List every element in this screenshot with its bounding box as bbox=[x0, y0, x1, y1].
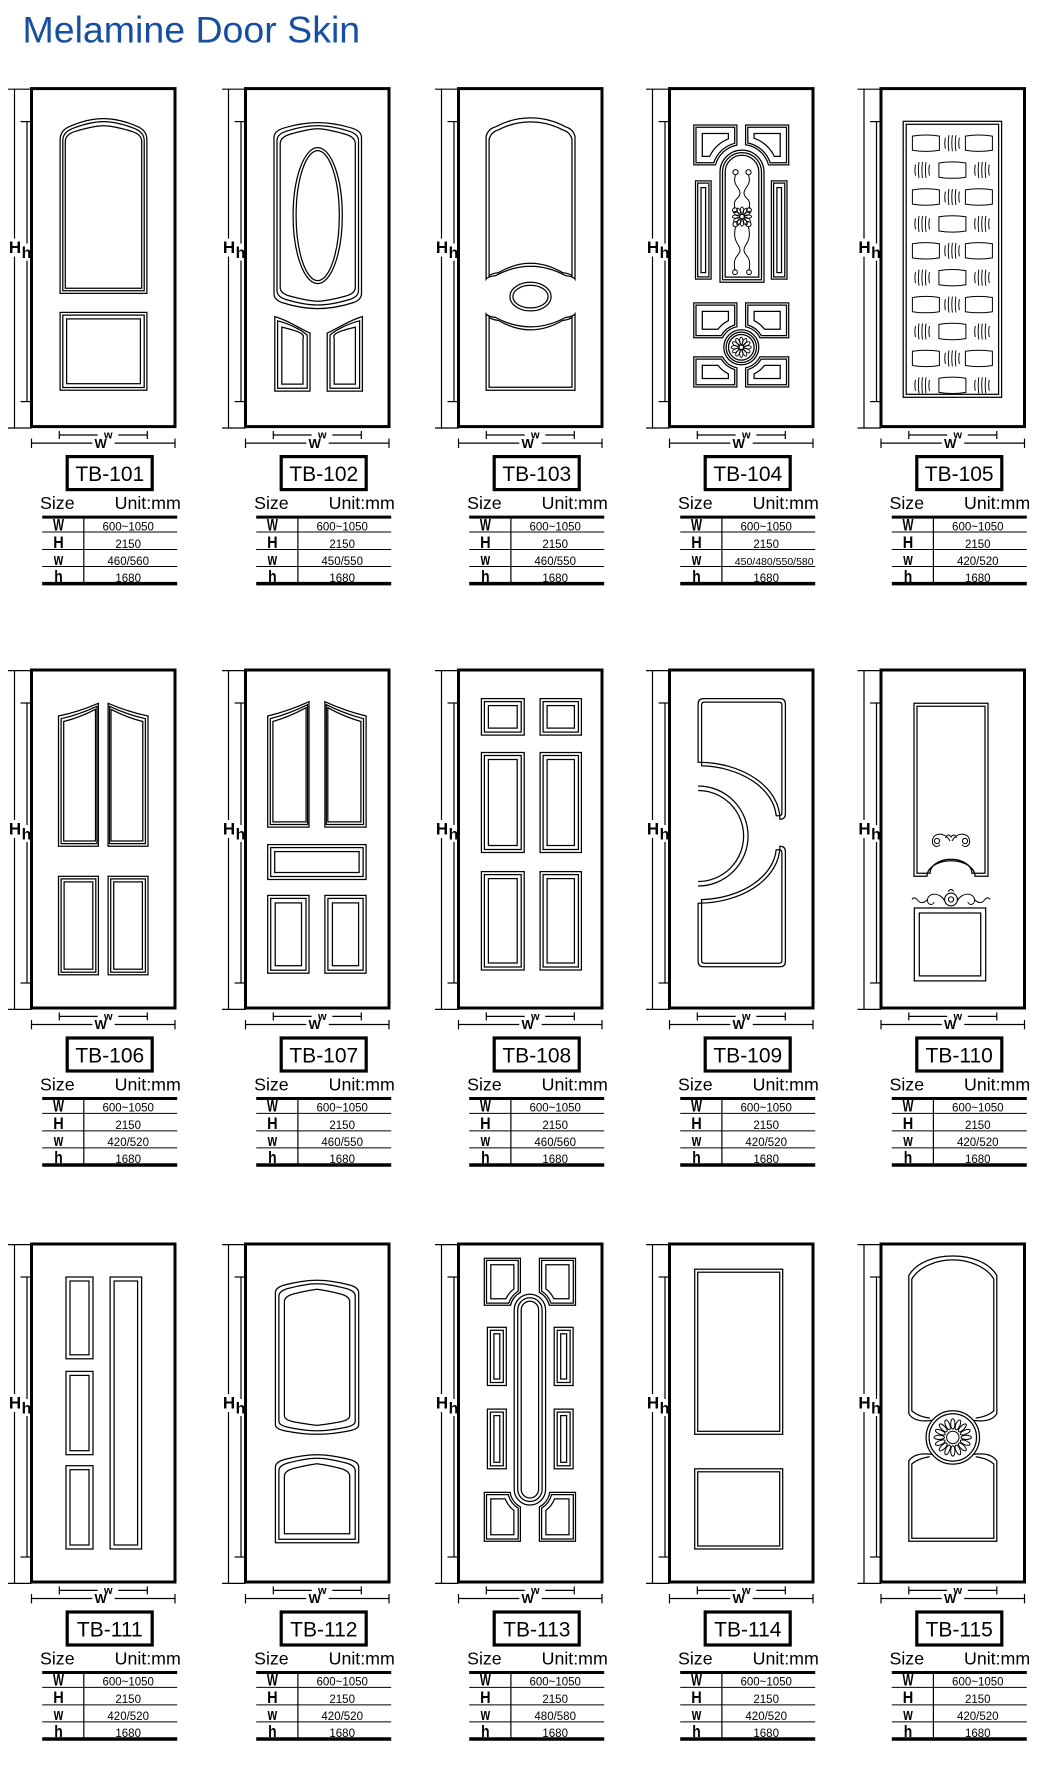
svg-text:1680: 1680 bbox=[115, 1728, 141, 1740]
svg-text:Size: Size bbox=[890, 1649, 925, 1669]
svg-text:TB-108: TB-108 bbox=[502, 1045, 571, 1068]
svg-text:H: H bbox=[267, 534, 278, 552]
svg-text:TB-109: TB-109 bbox=[713, 1045, 782, 1068]
svg-text:h: h bbox=[692, 1149, 701, 1167]
svg-text:W: W bbox=[903, 1098, 914, 1116]
svg-text:H: H bbox=[691, 534, 702, 552]
svg-text:w: w bbox=[53, 1132, 63, 1150]
svg-text:TB-112: TB-112 bbox=[290, 1619, 357, 1642]
svg-text:2150: 2150 bbox=[753, 539, 779, 551]
svg-text:W: W bbox=[733, 1017, 746, 1032]
svg-text:H: H bbox=[9, 238, 21, 257]
svg-text:TB-110: TB-110 bbox=[926, 1045, 993, 1068]
svg-text:2150: 2150 bbox=[542, 1694, 568, 1706]
svg-text:Size: Size bbox=[254, 493, 289, 513]
svg-text:W: W bbox=[53, 516, 64, 534]
svg-text:2150: 2150 bbox=[329, 1120, 355, 1132]
svg-text:1680: 1680 bbox=[329, 573, 355, 585]
svg-text:h: h bbox=[660, 827, 670, 844]
svg-text:H: H bbox=[436, 238, 448, 257]
svg-text:1680: 1680 bbox=[965, 1728, 991, 1740]
svg-text:600~1050: 600~1050 bbox=[952, 1103, 1004, 1115]
svg-text:H: H bbox=[480, 1115, 491, 1133]
svg-text:h: h bbox=[268, 1723, 277, 1741]
svg-text:H: H bbox=[9, 820, 21, 839]
svg-text:Size: Size bbox=[467, 1649, 502, 1669]
svg-text:2150: 2150 bbox=[329, 539, 355, 551]
svg-text:TB-114: TB-114 bbox=[714, 1619, 782, 1642]
svg-text:H: H bbox=[647, 238, 659, 257]
svg-text:W: W bbox=[267, 516, 278, 534]
svg-text:Unit:mm: Unit:mm bbox=[115, 493, 181, 513]
svg-text:Unit:mm: Unit:mm bbox=[329, 493, 395, 513]
svg-text:600~1050: 600~1050 bbox=[316, 1103, 368, 1115]
svg-text:460/550: 460/550 bbox=[534, 556, 576, 568]
svg-text:1680: 1680 bbox=[753, 573, 779, 585]
svg-text:H: H bbox=[223, 238, 235, 257]
svg-text:420/520: 420/520 bbox=[745, 1137, 787, 1149]
svg-text:h: h bbox=[268, 1149, 277, 1167]
svg-text:W: W bbox=[309, 1017, 322, 1032]
svg-text:H: H bbox=[480, 1689, 491, 1707]
svg-text:H: H bbox=[903, 1689, 914, 1707]
svg-text:H: H bbox=[267, 1115, 278, 1133]
svg-text:2150: 2150 bbox=[753, 1120, 779, 1132]
svg-text:W: W bbox=[903, 516, 914, 534]
svg-text:W: W bbox=[944, 1017, 957, 1032]
svg-text:Size: Size bbox=[254, 1075, 289, 1095]
svg-text:W: W bbox=[480, 1098, 491, 1116]
svg-text:Melamine Door Skin: Melamine Door Skin bbox=[23, 8, 361, 50]
svg-text:h: h bbox=[54, 1723, 63, 1741]
svg-text:Size: Size bbox=[678, 493, 713, 513]
svg-text:Size: Size bbox=[40, 1649, 75, 1669]
svg-text:1680: 1680 bbox=[753, 1154, 779, 1166]
svg-text:W: W bbox=[95, 1017, 108, 1032]
svg-text:Unit:mm: Unit:mm bbox=[115, 1649, 181, 1669]
svg-text:h: h bbox=[871, 827, 881, 844]
svg-text:Size: Size bbox=[40, 493, 75, 513]
svg-text:H: H bbox=[436, 1394, 448, 1413]
svg-text:TB-115: TB-115 bbox=[926, 1619, 993, 1642]
svg-text:h: h bbox=[871, 1401, 881, 1418]
svg-text:460/550: 460/550 bbox=[321, 1137, 363, 1149]
svg-text:W: W bbox=[691, 1672, 702, 1690]
svg-text:600~1050: 600~1050 bbox=[102, 1103, 154, 1115]
svg-text:Unit:mm: Unit:mm bbox=[964, 1649, 1030, 1669]
svg-text:Unit:mm: Unit:mm bbox=[542, 1075, 608, 1095]
svg-text:1680: 1680 bbox=[115, 1154, 141, 1166]
svg-text:TB-106: TB-106 bbox=[75, 1045, 144, 1068]
svg-text:h: h bbox=[449, 1401, 459, 1418]
svg-text:600~1050: 600~1050 bbox=[952, 1677, 1004, 1689]
svg-text:600~1050: 600~1050 bbox=[102, 521, 154, 533]
svg-text:W: W bbox=[733, 1591, 746, 1606]
svg-text:h: h bbox=[236, 245, 246, 262]
svg-text:2150: 2150 bbox=[329, 1694, 355, 1706]
svg-text:H: H bbox=[903, 1115, 914, 1133]
svg-text:w: w bbox=[903, 1132, 913, 1150]
svg-text:W: W bbox=[903, 1672, 914, 1690]
svg-text:h: h bbox=[449, 827, 459, 844]
svg-text:1680: 1680 bbox=[542, 1154, 568, 1166]
svg-text:TB-105: TB-105 bbox=[925, 463, 994, 486]
svg-text:420/520: 420/520 bbox=[745, 1711, 787, 1723]
svg-text:w: w bbox=[903, 1706, 913, 1724]
svg-text:600~1050: 600~1050 bbox=[740, 1677, 792, 1689]
svg-text:Unit:mm: Unit:mm bbox=[115, 1075, 181, 1095]
svg-text:h: h bbox=[22, 827, 32, 844]
svg-text:TB-102: TB-102 bbox=[289, 463, 358, 486]
svg-text:W: W bbox=[944, 1591, 957, 1606]
svg-text:Unit:mm: Unit:mm bbox=[542, 493, 608, 513]
svg-text:h: h bbox=[54, 1149, 63, 1167]
svg-text:W: W bbox=[480, 516, 491, 534]
svg-text:w: w bbox=[53, 551, 63, 569]
svg-text:Size: Size bbox=[678, 1649, 713, 1669]
svg-text:H: H bbox=[267, 1689, 278, 1707]
svg-text:Size: Size bbox=[254, 1649, 289, 1669]
svg-text:Size: Size bbox=[890, 493, 925, 513]
svg-text:480/580: 480/580 bbox=[534, 1711, 576, 1723]
svg-text:TB-104: TB-104 bbox=[713, 463, 782, 486]
svg-text:Size: Size bbox=[467, 493, 502, 513]
svg-text:600~1050: 600~1050 bbox=[529, 1103, 581, 1115]
svg-text:W: W bbox=[267, 1672, 278, 1690]
svg-text:600~1050: 600~1050 bbox=[740, 521, 792, 533]
svg-text:h: h bbox=[692, 568, 701, 586]
svg-text:1680: 1680 bbox=[542, 1728, 568, 1740]
svg-text:2150: 2150 bbox=[115, 1694, 141, 1706]
svg-text:600~1050: 600~1050 bbox=[952, 521, 1004, 533]
svg-text:h: h bbox=[481, 1723, 490, 1741]
svg-text:1680: 1680 bbox=[115, 573, 141, 585]
svg-text:Unit:mm: Unit:mm bbox=[753, 1075, 819, 1095]
svg-text:H: H bbox=[223, 1394, 235, 1413]
svg-text:h: h bbox=[904, 568, 913, 586]
svg-text:1680: 1680 bbox=[753, 1728, 779, 1740]
svg-text:H: H bbox=[647, 820, 659, 839]
svg-text:w: w bbox=[691, 1132, 701, 1150]
svg-text:Unit:mm: Unit:mm bbox=[329, 1075, 395, 1095]
svg-text:h: h bbox=[236, 1401, 246, 1418]
svg-text:1680: 1680 bbox=[965, 573, 991, 585]
svg-text:1680: 1680 bbox=[329, 1154, 355, 1166]
svg-text:W: W bbox=[691, 1098, 702, 1116]
svg-text:TB-107: TB-107 bbox=[289, 1045, 358, 1068]
svg-text:h: h bbox=[22, 1401, 32, 1418]
svg-text:460/560: 460/560 bbox=[107, 556, 149, 568]
svg-text:w: w bbox=[267, 1706, 277, 1724]
svg-text:H: H bbox=[903, 534, 914, 552]
svg-text:Unit:mm: Unit:mm bbox=[964, 1075, 1030, 1095]
svg-text:Size: Size bbox=[678, 1075, 713, 1095]
svg-text:TB-113: TB-113 bbox=[503, 1619, 570, 1642]
svg-text:H: H bbox=[480, 534, 491, 552]
svg-text:h: h bbox=[481, 568, 490, 586]
svg-text:2150: 2150 bbox=[115, 1120, 141, 1132]
svg-text:w: w bbox=[480, 551, 490, 569]
svg-text:2150: 2150 bbox=[965, 539, 991, 551]
svg-text:h: h bbox=[904, 1149, 913, 1167]
svg-text:H: H bbox=[858, 820, 870, 839]
svg-text:Size: Size bbox=[467, 1075, 502, 1095]
svg-text:460/560: 460/560 bbox=[534, 1137, 576, 1149]
svg-text:2150: 2150 bbox=[115, 539, 141, 551]
svg-text:W: W bbox=[733, 436, 746, 451]
svg-text:Unit:mm: Unit:mm bbox=[329, 1649, 395, 1669]
svg-text:1680: 1680 bbox=[542, 573, 568, 585]
svg-text:420/520: 420/520 bbox=[957, 556, 999, 568]
svg-text:H: H bbox=[858, 1394, 870, 1413]
svg-text:420/520: 420/520 bbox=[107, 1137, 149, 1149]
svg-text:w: w bbox=[691, 551, 701, 569]
svg-text:h: h bbox=[54, 568, 63, 586]
svg-text:W: W bbox=[522, 1017, 535, 1032]
svg-text:600~1050: 600~1050 bbox=[740, 1103, 792, 1115]
svg-text:W: W bbox=[95, 1591, 108, 1606]
svg-text:w: w bbox=[267, 551, 277, 569]
svg-text:h: h bbox=[236, 827, 246, 844]
svg-text:H: H bbox=[53, 1115, 64, 1133]
svg-text:Size: Size bbox=[890, 1075, 925, 1095]
svg-text:W: W bbox=[522, 436, 535, 451]
svg-text:Unit:mm: Unit:mm bbox=[753, 493, 819, 513]
svg-text:Size: Size bbox=[40, 1075, 75, 1095]
svg-text:Unit:mm: Unit:mm bbox=[542, 1649, 608, 1669]
svg-text:H: H bbox=[691, 1689, 702, 1707]
svg-text:W: W bbox=[309, 1591, 322, 1606]
svg-text:600~1050: 600~1050 bbox=[316, 521, 368, 533]
svg-text:2150: 2150 bbox=[542, 1120, 568, 1132]
svg-text:h: h bbox=[22, 245, 32, 262]
svg-text:W: W bbox=[480, 1672, 491, 1690]
svg-text:w: w bbox=[267, 1132, 277, 1150]
svg-text:w: w bbox=[480, 1706, 490, 1724]
svg-text:450/550: 450/550 bbox=[321, 556, 363, 568]
svg-text:H: H bbox=[9, 1394, 21, 1413]
svg-text:420/520: 420/520 bbox=[107, 1711, 149, 1723]
svg-text:w: w bbox=[903, 551, 913, 569]
svg-text:420/520: 420/520 bbox=[321, 1711, 363, 1723]
svg-text:W: W bbox=[267, 1098, 278, 1116]
svg-text:W: W bbox=[944, 436, 957, 451]
svg-text:H: H bbox=[53, 534, 64, 552]
svg-text:w: w bbox=[53, 1706, 63, 1724]
svg-text:W: W bbox=[522, 1591, 535, 1606]
svg-text:W: W bbox=[53, 1098, 64, 1116]
svg-text:TB-101: TB-101 bbox=[75, 463, 144, 486]
svg-text:600~1050: 600~1050 bbox=[529, 521, 581, 533]
svg-text:600~1050: 600~1050 bbox=[316, 1677, 368, 1689]
svg-text:W: W bbox=[691, 516, 702, 534]
svg-text:Unit:mm: Unit:mm bbox=[964, 493, 1030, 513]
svg-text:H: H bbox=[223, 820, 235, 839]
svg-text:TB-103: TB-103 bbox=[502, 463, 571, 486]
svg-text:h: h bbox=[660, 245, 670, 262]
svg-text:2150: 2150 bbox=[965, 1694, 991, 1706]
svg-text:600~1050: 600~1050 bbox=[529, 1677, 581, 1689]
svg-text:450/480/550/580: 450/480/550/580 bbox=[735, 556, 814, 568]
svg-text:h: h bbox=[449, 245, 459, 262]
svg-text:W: W bbox=[95, 436, 108, 451]
svg-text:H: H bbox=[436, 820, 448, 839]
svg-text:420/520: 420/520 bbox=[957, 1137, 999, 1149]
svg-text:H: H bbox=[647, 1394, 659, 1413]
svg-text:TB-111: TB-111 bbox=[77, 1619, 143, 1642]
svg-text:420/520: 420/520 bbox=[957, 1711, 999, 1723]
svg-text:W: W bbox=[309, 436, 322, 451]
svg-text:h: h bbox=[268, 568, 277, 586]
svg-text:H: H bbox=[53, 1689, 64, 1707]
svg-text:2150: 2150 bbox=[542, 539, 568, 551]
svg-text:2150: 2150 bbox=[965, 1120, 991, 1132]
svg-text:h: h bbox=[692, 1723, 701, 1741]
svg-text:W: W bbox=[53, 1672, 64, 1690]
svg-text:h: h bbox=[481, 1149, 490, 1167]
svg-text:w: w bbox=[480, 1132, 490, 1150]
svg-text:h: h bbox=[904, 1723, 913, 1741]
svg-text:1680: 1680 bbox=[329, 1728, 355, 1740]
svg-text:w: w bbox=[691, 1706, 701, 1724]
svg-text:2150: 2150 bbox=[753, 1694, 779, 1706]
svg-text:1680: 1680 bbox=[965, 1154, 991, 1166]
svg-text:H: H bbox=[691, 1115, 702, 1133]
svg-text:600~1050: 600~1050 bbox=[102, 1677, 154, 1689]
svg-text:h: h bbox=[660, 1401, 670, 1418]
svg-text:h: h bbox=[871, 245, 881, 262]
svg-text:H: H bbox=[858, 238, 870, 257]
svg-text:Unit:mm: Unit:mm bbox=[753, 1649, 819, 1669]
